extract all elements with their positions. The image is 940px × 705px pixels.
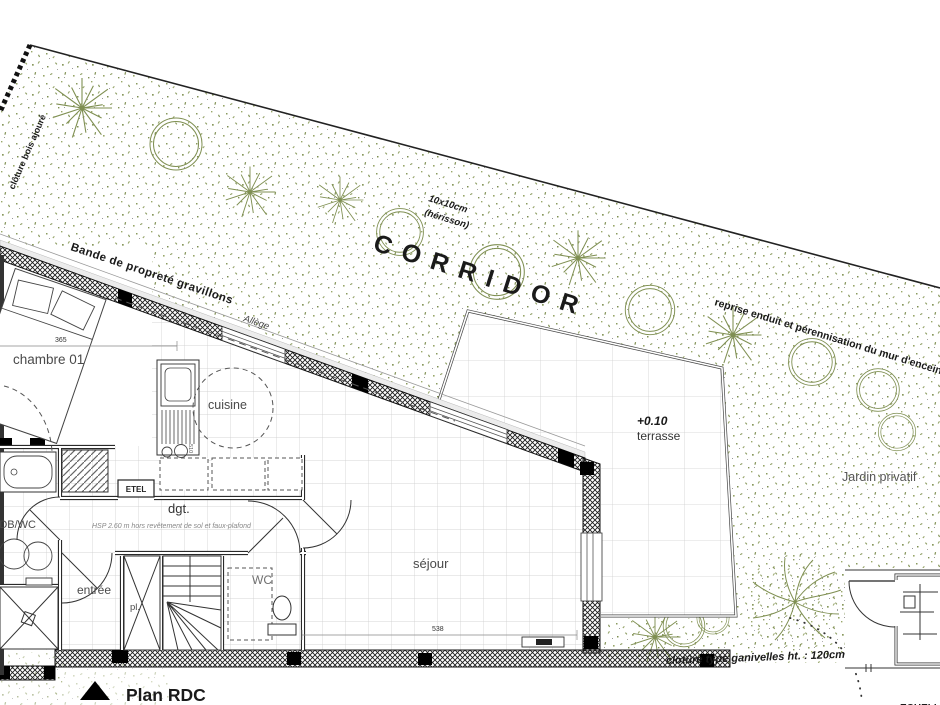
floor-plan-drawing: CORRIDOR 10x10cm (hérisson) clôture bois… — [0, 0, 940, 705]
entrance-label: entrée — [77, 583, 111, 597]
bathtub-symbol — [0, 452, 56, 492]
sejour-dimension: 538 — [432, 626, 444, 633]
living-room-label: séjour — [413, 556, 449, 571]
kitchen-dimension: 510 — [187, 444, 193, 453]
stairs-symbol — [163, 556, 221, 650]
bedroom-label: chambre 01 — [13, 352, 84, 367]
shed-door-gap — [891, 580, 900, 626]
ceiling-height-note: HSP 2.60 m hors revêtement de sol et fau… — [92, 523, 252, 530]
wc-label: WC — [252, 573, 272, 587]
base-cabinets-dashed — [160, 458, 302, 490]
bedroom-dimension: 365 — [55, 337, 67, 344]
east-wall — [580, 458, 602, 653]
bath-mat — [26, 578, 52, 585]
kitchen-label: cuisine — [208, 398, 247, 412]
hallway-label: dgt. — [168, 501, 190, 516]
duct-shaft — [62, 450, 108, 492]
garden-shed — [845, 568, 940, 672]
technical-box — [0, 587, 58, 649]
plan-title: Plan RDC — [126, 685, 206, 705]
bathroom-label: SDB/WC — [0, 519, 36, 531]
toilet-symbol — [273, 596, 291, 620]
closet-label: pl. — [130, 602, 140, 613]
private-garden-label: Jardin privatif — [842, 470, 917, 484]
terrace-level-label: +0.10 — [637, 414, 668, 428]
etel-label: ETEL — [126, 485, 147, 494]
bay-window-opening — [581, 533, 602, 601]
terrace-label: terrasse — [637, 429, 681, 443]
wall-jamb — [0, 438, 12, 445]
floor-plan-canvas: CORRIDOR 10x10cm (hérisson) clôture bois… — [0, 0, 940, 705]
